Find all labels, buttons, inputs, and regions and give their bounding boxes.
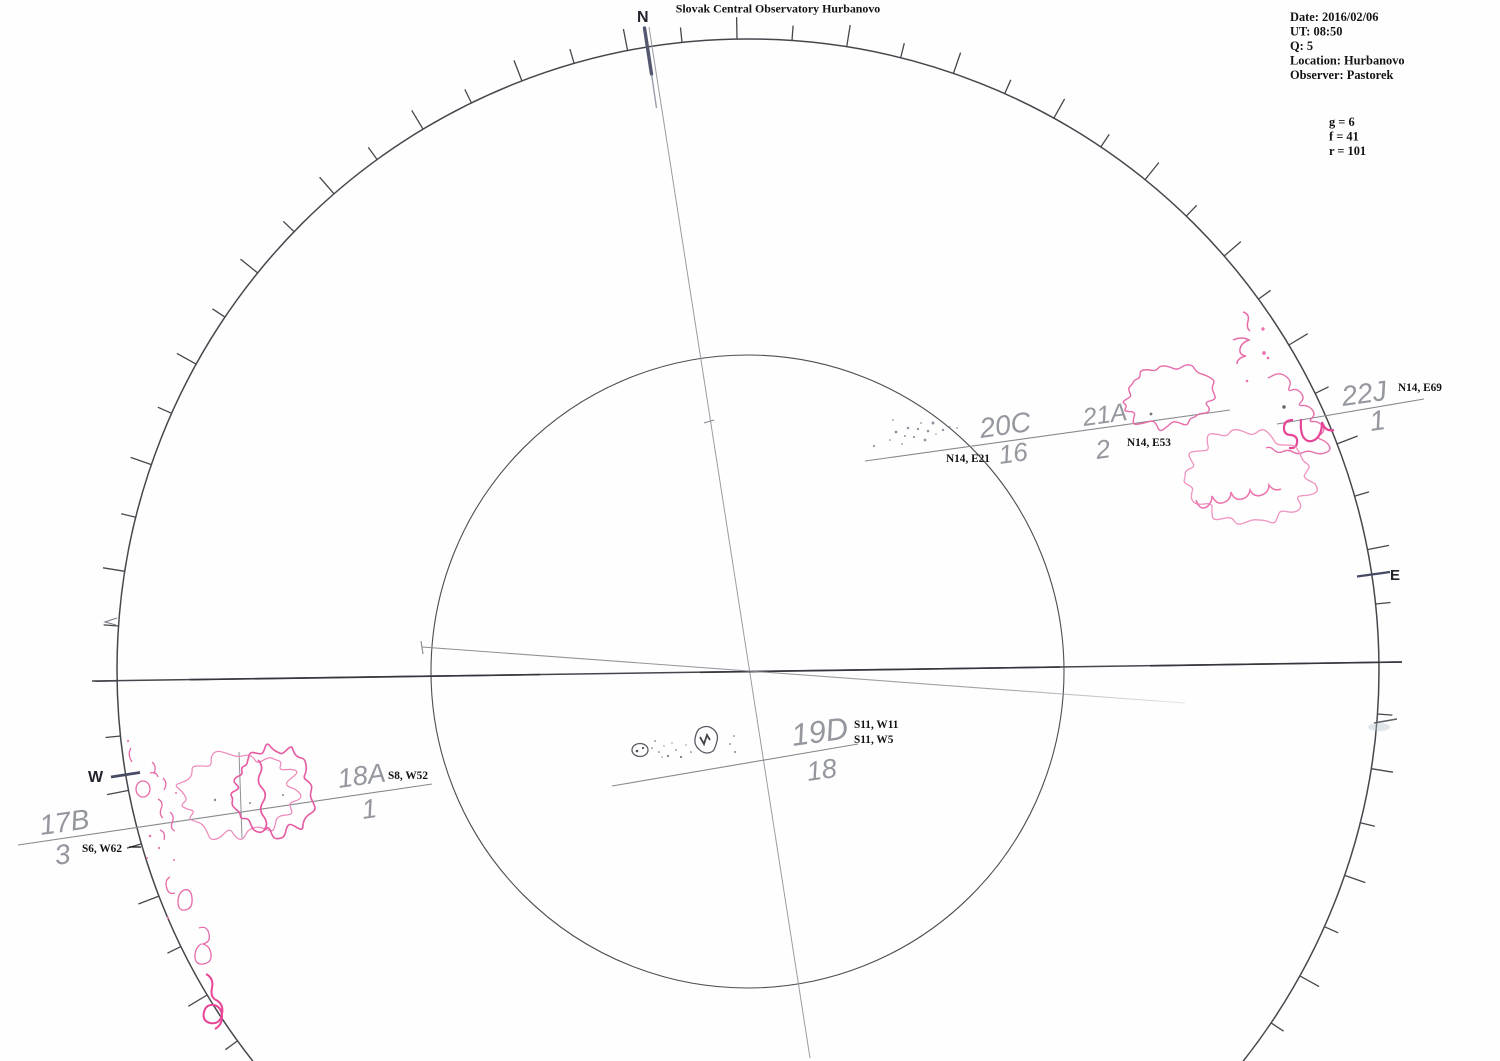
svg-text:UT: 08:50: UT: 08:50	[1290, 25, 1342, 39]
svg-text:N14, E69: N14, E69	[1398, 382, 1442, 394]
svg-text:W: W	[88, 769, 104, 786]
svg-text:Observer: Pastorek: Observer: Pastorek	[1290, 68, 1393, 82]
svg-text:r = 101: r = 101	[1329, 144, 1366, 158]
svg-text:Location: Hurbanovo: Location: Hurbanovo	[1290, 54, 1405, 68]
svg-text:18: 18	[805, 753, 839, 787]
svg-text:f = 41: f = 41	[1329, 130, 1359, 144]
svg-text:S8, W52: S8, W52	[388, 770, 428, 782]
svg-text:E: E	[1390, 567, 1400, 584]
svg-text:S6, W62: S6, W62	[82, 843, 122, 855]
svg-text:N14, E21: N14, E21	[946, 453, 990, 465]
svg-text:N: N	[637, 9, 649, 26]
svg-text:S11, W11: S11, W11	[854, 719, 899, 731]
svg-text:16: 16	[997, 436, 1030, 470]
svg-text:N14, E53: N14, E53	[1127, 437, 1171, 449]
svg-text:Q: 5: Q: 5	[1290, 39, 1313, 53]
svg-text:Slovak Central Observatory Hur: Slovak Central Observatory Hurbanovo	[676, 2, 881, 16]
svg-text:S11, W5: S11, W5	[854, 734, 894, 746]
svg-text:Date: 2016/02/06: Date: 2016/02/06	[1290, 10, 1378, 24]
svg-text:g = 6: g = 6	[1329, 115, 1355, 129]
